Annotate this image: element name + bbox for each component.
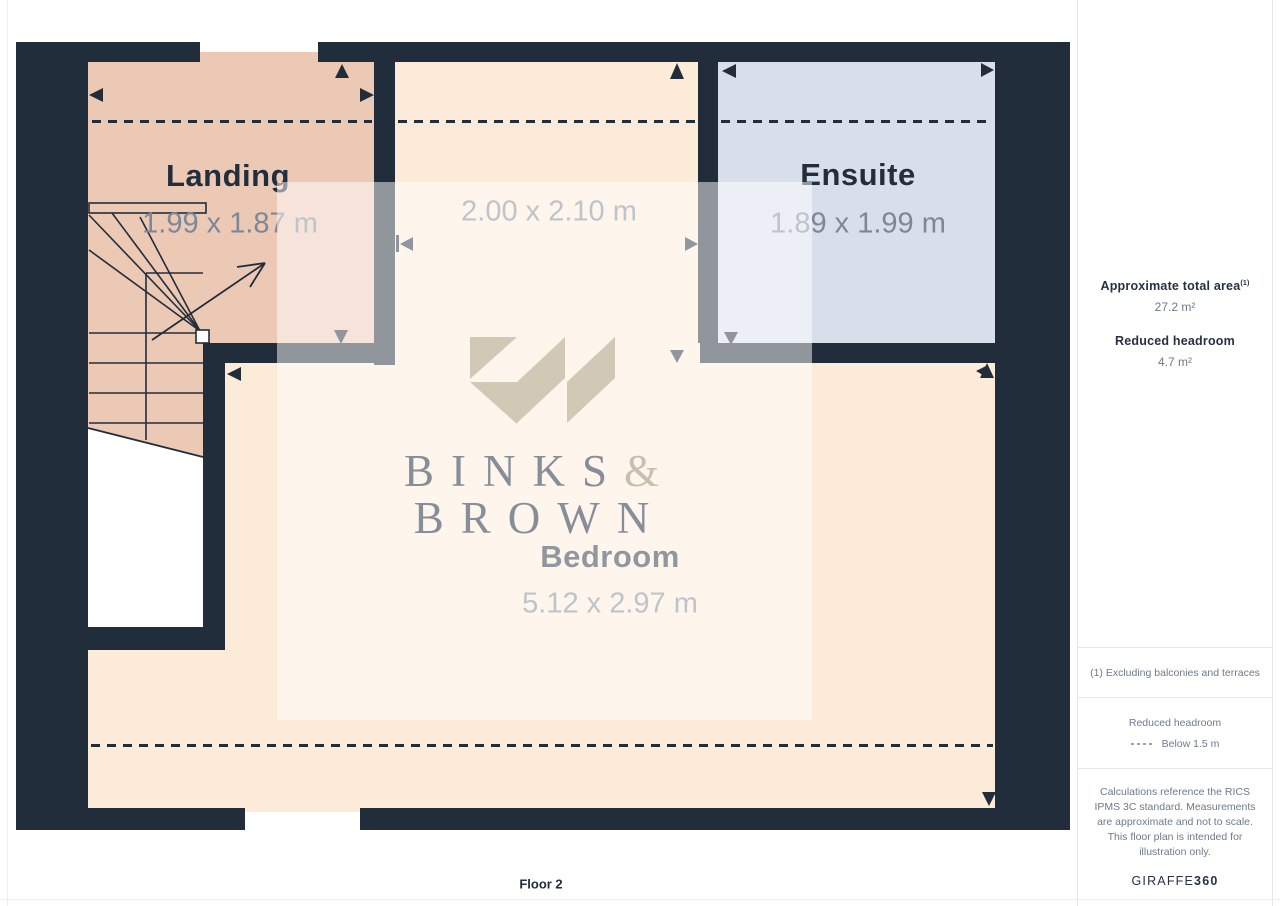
ensuite-arrow-left bbox=[722, 64, 736, 78]
landing-arrow-up bbox=[335, 64, 349, 78]
page-left-edge bbox=[7, 0, 8, 906]
floor-caption: Floor 2 bbox=[519, 877, 562, 892]
ensuite-label: Ensuite bbox=[800, 157, 915, 193]
bedroom-arrow-left bbox=[227, 367, 241, 381]
footnote-ref: (1) bbox=[1240, 279, 1249, 286]
middle-arrow-up bbox=[670, 63, 684, 79]
agency-logo-wordmark: BINKS& BROWN bbox=[404, 448, 676, 542]
stairwell-void bbox=[88, 428, 203, 627]
floorplan-canvas: Landing 1.99 x 1.87 m 2.00 x 2.10 m Ensu… bbox=[0, 0, 1077, 906]
bedroom-arrow-down bbox=[982, 792, 996, 806]
footnote-text: (1) Excluding balconies and terraces bbox=[1090, 667, 1260, 679]
area-summary-section: Approximate total area(1) 27.2 m² Reduce… bbox=[1078, 0, 1272, 647]
total-area-heading: Approximate total area(1) bbox=[1100, 279, 1249, 293]
page-bottom-edge bbox=[0, 899, 1280, 900]
disclaimer-section: Calculations reference the RICS IPMS 3C … bbox=[1078, 768, 1272, 906]
footnote-section: (1) Excluding balconies and terraces bbox=[1078, 647, 1272, 697]
landing-arrow-left bbox=[89, 88, 103, 102]
reduced-headroom-dash-icon bbox=[1131, 743, 1155, 745]
reduced-headroom-value: 4.7 m² bbox=[1158, 355, 1192, 369]
agency-logo-icon bbox=[460, 330, 630, 430]
ensuite-arrow-right bbox=[981, 63, 994, 77]
landing-label: Landing bbox=[166, 158, 290, 194]
legend-item-label: Below 1.5 m bbox=[1162, 738, 1220, 750]
landing-arrow-right bbox=[360, 88, 374, 102]
legend-row: Below 1.5 m bbox=[1131, 738, 1220, 750]
disclaimer-text: Calculations reference the RICS IPMS 3C … bbox=[1086, 785, 1264, 860]
logo-line-1: BINKS& bbox=[404, 448, 676, 495]
info-sidebar: Approximate total area(1) 27.2 m² Reduce… bbox=[1077, 0, 1273, 906]
legend-section: Reduced headroom Below 1.5 m bbox=[1078, 697, 1272, 768]
logo-line-2: BROWN bbox=[404, 495, 676, 542]
giraffe360-brand: GIRAFFE360 bbox=[1131, 874, 1218, 888]
stairs-up-arrow bbox=[152, 263, 265, 340]
legend-title: Reduced headroom bbox=[1129, 717, 1221, 729]
total-area-value: 27.2 m² bbox=[1155, 300, 1196, 314]
floorplan-page: Landing 1.99 x 1.87 m 2.00 x 2.10 m Ensu… bbox=[0, 0, 1280, 906]
logo-ampersand: & bbox=[624, 446, 676, 496]
reduced-headroom-heading: Reduced headroom bbox=[1115, 334, 1235, 348]
